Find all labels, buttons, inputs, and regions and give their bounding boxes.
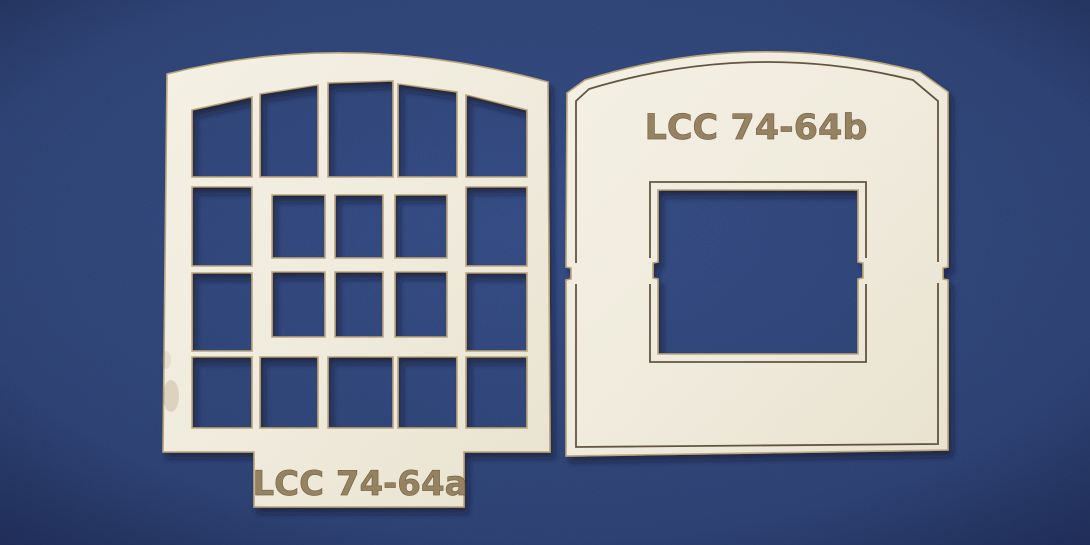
- photo: LCC 74-64a LCC 74-64b: [0, 0, 1090, 545]
- photo-stage: LCC 74-64a LCC 74-64b: [0, 0, 1090, 545]
- film-grain-overlay: [0, 0, 1090, 545]
